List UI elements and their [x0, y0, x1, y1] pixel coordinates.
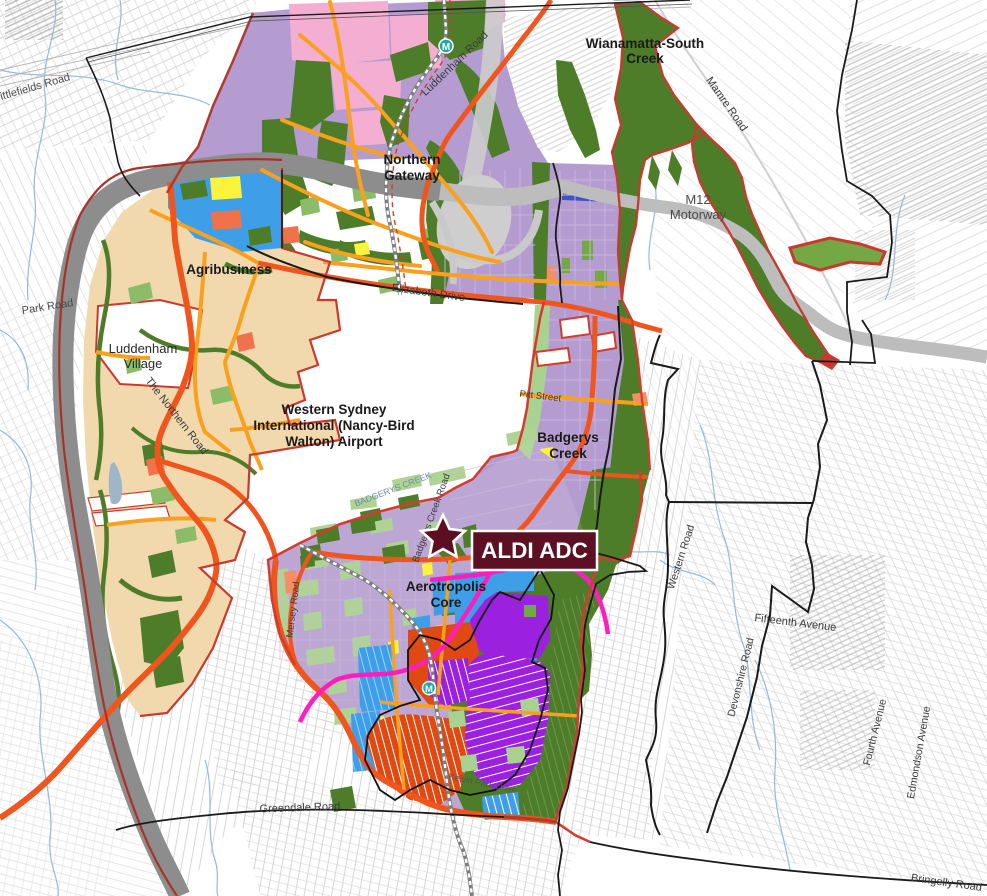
svg-text:Walton) Airport: Walton) Airport	[285, 434, 383, 449]
svg-text:Luddenham: Luddenham	[109, 341, 178, 356]
svg-text:ALDI ADC: ALDI ADC	[481, 538, 588, 563]
svg-text:Badgerys: Badgerys	[537, 430, 599, 445]
svg-text:Aerotropolis: Aerotropolis	[406, 579, 486, 594]
svg-text:Western Sydney: Western Sydney	[282, 402, 387, 417]
svg-text:Gateway: Gateway	[384, 168, 440, 183]
svg-text:Village: Village	[124, 356, 163, 371]
svg-text:Creek: Creek	[549, 446, 587, 461]
svg-text:Wianamatta-South: Wianamatta-South	[586, 36, 704, 51]
svg-text:International (Nancy-Bird: International (Nancy-Bird	[253, 418, 414, 433]
svg-text:M12: M12	[685, 192, 710, 207]
svg-text:Northern: Northern	[384, 152, 441, 167]
svg-text:Core: Core	[431, 595, 462, 610]
svg-text:M: M	[442, 42, 450, 53]
svg-text:Creek: Creek	[626, 51, 664, 66]
svg-text:Motorway: Motorway	[670, 207, 727, 222]
svg-text:Agribusiness: Agribusiness	[186, 262, 272, 277]
svg-text:M: M	[425, 684, 433, 695]
